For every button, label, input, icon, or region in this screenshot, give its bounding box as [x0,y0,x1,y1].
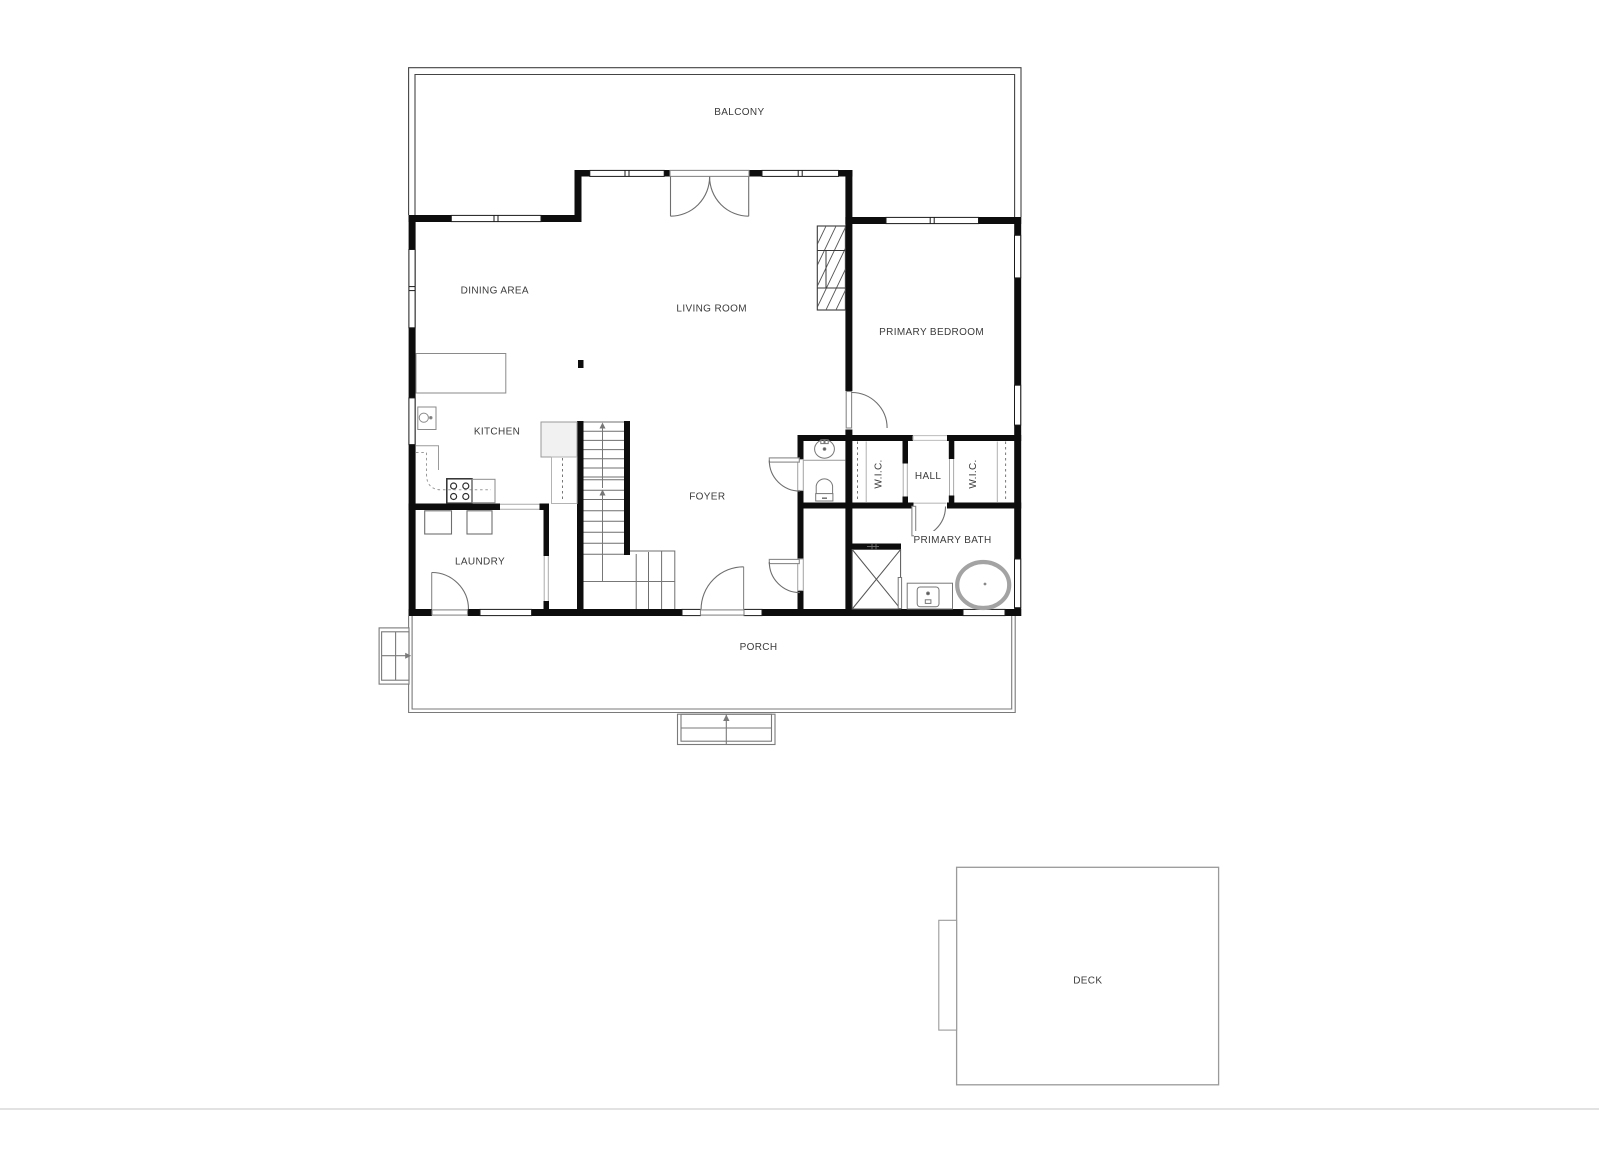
svg-text:W.I.C.: W.I.C. [968,459,979,488]
svg-text:PRIMARY BEDROOM: PRIMARY BEDROOM [879,327,984,338]
svg-text:DECK: DECK [1073,976,1102,987]
svg-text:LIVING ROOM: LIVING ROOM [676,303,747,314]
svg-text:PORCH: PORCH [740,642,778,653]
svg-text:HALL: HALL [915,471,942,482]
svg-text:W.I.C.: W.I.C. [874,459,885,488]
svg-text:LAUNDRY: LAUNDRY [455,556,505,567]
svg-text:DINING AREA: DINING AREA [461,285,529,296]
svg-text:KITCHEN: KITCHEN [474,427,520,438]
svg-text:PRIMARY BATH: PRIMARY BATH [913,535,991,546]
svg-text:BALCONY: BALCONY [714,107,764,118]
svg-text:FOYER: FOYER [689,491,725,502]
